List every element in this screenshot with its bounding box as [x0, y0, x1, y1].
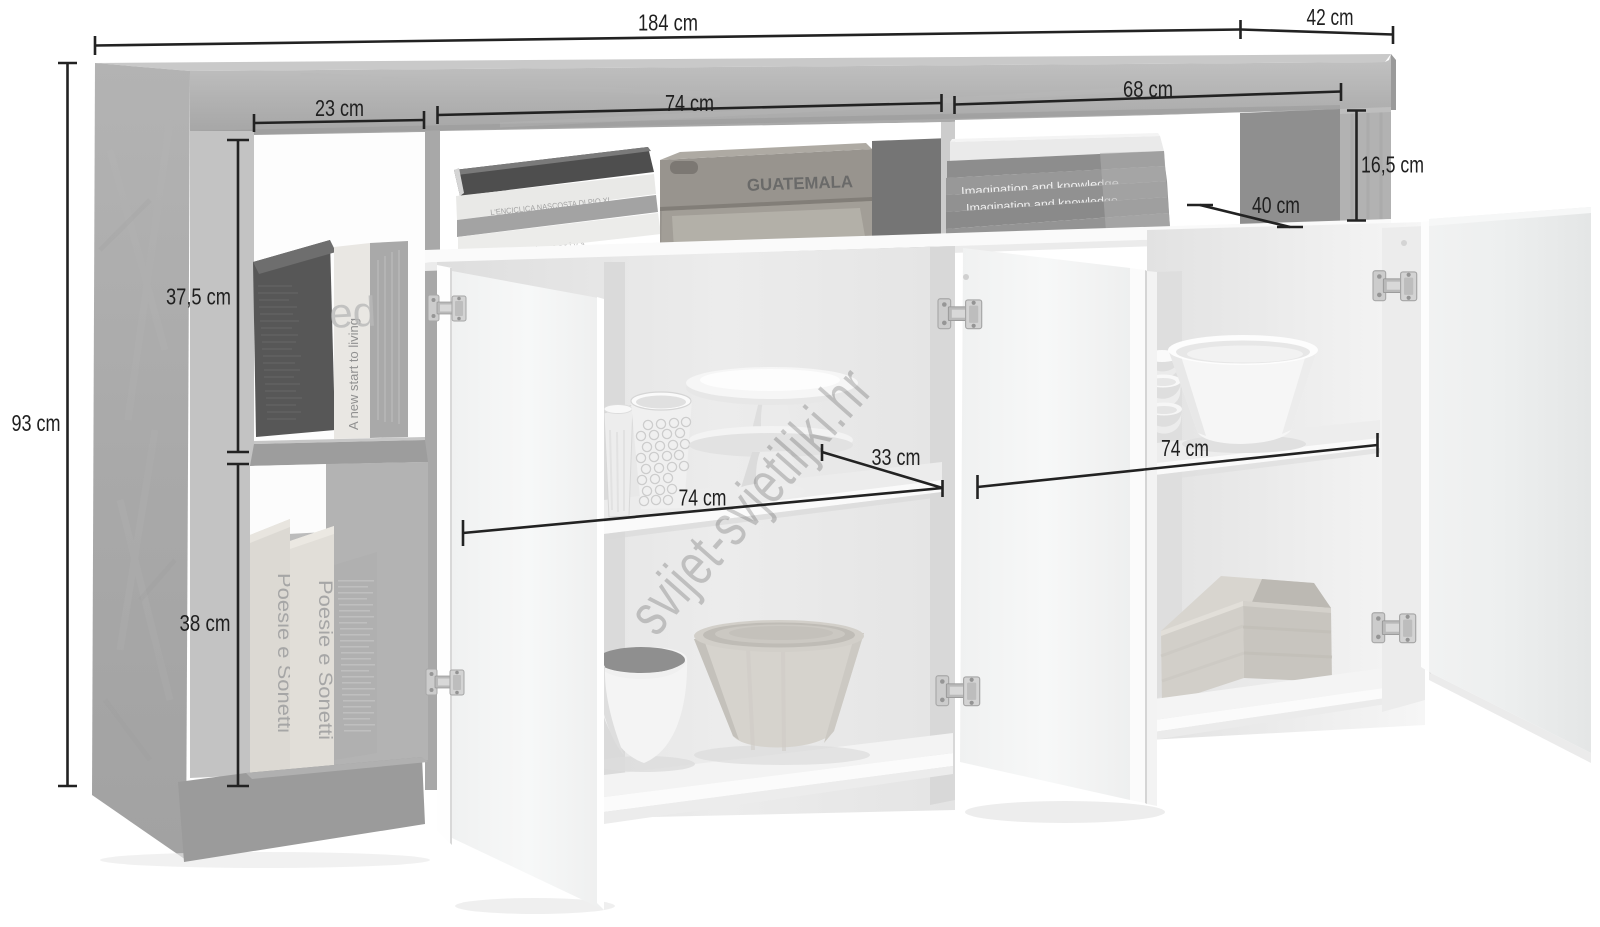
- svg-text:74 cm: 74 cm: [665, 90, 714, 116]
- svg-text:74 cm: 74 cm: [679, 485, 727, 511]
- svg-text:16,5 cm: 16,5 cm: [1361, 152, 1424, 178]
- svg-text:Poesie e Sonetti: Poesie e Sonetti: [314, 580, 335, 740]
- svg-text:38 cm: 38 cm: [180, 610, 231, 636]
- svg-text:ed: ed: [328, 288, 377, 337]
- svg-text:23 cm: 23 cm: [315, 95, 364, 121]
- svg-text:68 cm: 68 cm: [1123, 76, 1173, 102]
- svg-text:74 cm: 74 cm: [1161, 435, 1209, 461]
- svg-text:33 cm: 33 cm: [872, 444, 921, 470]
- svg-text:40 cm: 40 cm: [1252, 192, 1300, 218]
- svg-text:37,5 cm: 37,5 cm: [166, 284, 231, 310]
- svg-text:184 cm: 184 cm: [638, 10, 698, 36]
- svg-text:42 cm: 42 cm: [1307, 4, 1354, 30]
- svg-text:93 cm: 93 cm: [12, 410, 61, 436]
- svg-text:GUATEMALA: GUATEMALA: [747, 172, 854, 195]
